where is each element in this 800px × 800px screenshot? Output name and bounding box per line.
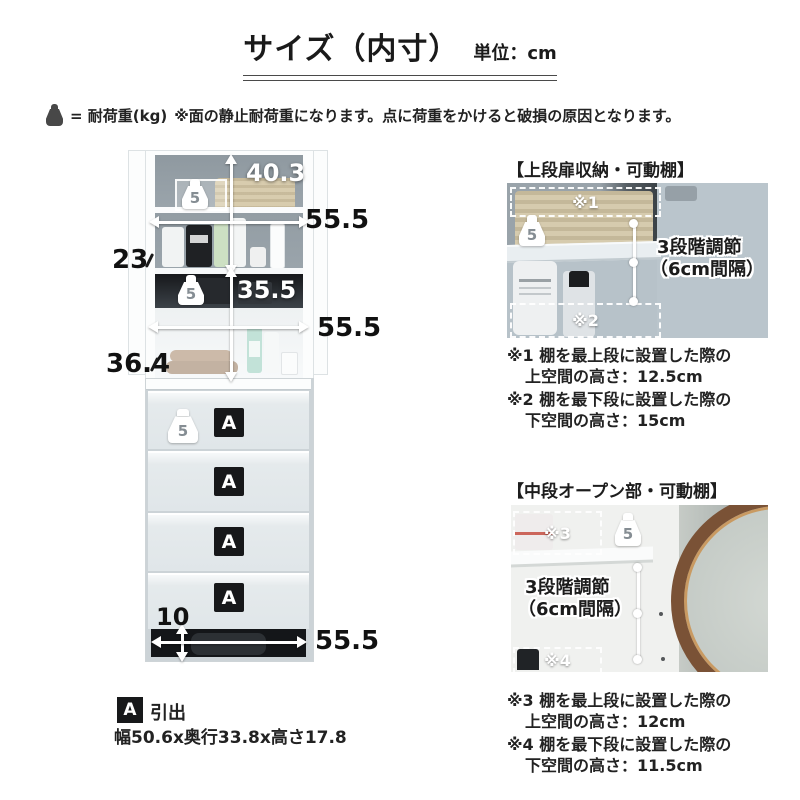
photo1-hinge-icon	[665, 186, 697, 201]
weight-icon-panel2: 5	[615, 513, 641, 546]
marker-2-label: ※2	[572, 311, 599, 330]
photo2-dot-bottom	[633, 655, 642, 664]
legend-name: 引出	[150, 699, 186, 725]
photo2-pin-hole-1	[659, 612, 663, 616]
panel2-adjust-line2: （6cm間隔）	[518, 600, 632, 620]
marker-4-label: ※4	[544, 651, 571, 670]
drawer-3-badge: A	[214, 527, 244, 556]
panel-2-header: 【中段オープン部・可動棚】	[507, 477, 727, 502]
drawer-4-badge: A	[214, 583, 244, 612]
title-underline	[243, 75, 557, 81]
weight-icon-panel1: 5	[519, 215, 545, 246]
clear-jar	[281, 352, 298, 375]
mint-bottle	[247, 327, 262, 373]
middle-height-label: 35.5	[237, 278, 296, 302]
photo2-marker-top-zone: ※3	[513, 511, 602, 555]
top-depth-label: 23	[112, 247, 148, 273]
unit-label: 単位：cm	[473, 43, 556, 64]
product-pouch-white	[162, 227, 184, 267]
product-bottle-slim	[270, 223, 285, 269]
photo1-marker-top-zone: ※1	[510, 187, 661, 217]
load-value-drawer: 5	[178, 424, 188, 439]
weight-icon-top-shelf: 5	[182, 179, 208, 209]
panel1-note2-line2: 下空間の高さ：15cm	[525, 407, 685, 431]
panel2-adjust-line1: 3段階調節	[525, 578, 610, 598]
photo1-marker-bottom-zone: ※2	[510, 303, 661, 338]
photo2-dot-mid	[633, 609, 642, 618]
legend-badge: A	[117, 697, 143, 723]
photo1-dot-top	[629, 219, 638, 228]
load-capacity-note: = 耐荷重(kg) ※面の静止耐荷重になります。点に荷重をかけると破損の原因とな…	[46, 104, 680, 126]
load-note-label: = 耐荷重(kg)	[70, 105, 167, 126]
arrow-top-height	[230, 163, 233, 266]
arrow-base-width	[160, 641, 298, 644]
panel-2-photo: ※3 5 3段階調節 （6cm間隔） ※4	[511, 505, 768, 672]
load-value-panel1: 5	[527, 228, 537, 243]
middle-width-label: 55.5	[317, 315, 381, 341]
panel1-adjust-line2: （6cm間隔）	[650, 260, 764, 280]
photo2-marker-bottom-zone: ※4	[513, 647, 602, 672]
weight-icon	[46, 104, 63, 126]
marker-1-label: ※1	[572, 193, 599, 212]
panel-1-photo: ※1 ※2 5 3段階調節 （6cm間隔）	[507, 183, 768, 338]
drawer-2-badge: A	[214, 467, 244, 496]
panel2-note1-line2: 上空間の高さ：12cm	[525, 708, 685, 732]
base-height-label: 10	[156, 605, 189, 629]
panel1-adjust-line1: 3段階調節	[657, 238, 742, 258]
top-height-label: 40.3	[246, 161, 305, 185]
base-gap-item	[191, 633, 266, 655]
arrow-middle-height	[230, 276, 233, 373]
page-title: サイズ（内寸）	[243, 32, 459, 67]
page-title-block: サイズ（内寸）単位：cm	[0, 24, 800, 81]
load-note-text: ※面の静止耐荷重になります。点に荷重をかけると破損の原因となります。	[174, 105, 680, 126]
marker-3-label: ※3	[544, 524, 571, 543]
middle-depth-label: 36.4	[106, 351, 170, 377]
weight-icon-drawer: 5	[168, 409, 198, 443]
product-jar	[250, 247, 266, 267]
load-value-top: 5	[190, 191, 200, 206]
product-tube-green	[214, 222, 228, 267]
panel2-note2-line2: 下空間の高さ：11.5cm	[525, 752, 703, 776]
panel-1-header: 【上段扉収納・可動棚】	[507, 156, 694, 181]
legend-size: 幅50.6x奥行33.8x高さ17.8	[114, 723, 347, 748]
load-value-middle: 5	[186, 287, 196, 302]
pump-bottle	[264, 332, 279, 373]
photo2-pin-hole-2	[661, 657, 665, 661]
drawer-1-badge: A	[214, 408, 244, 437]
photo1-dot-bottom	[629, 297, 638, 306]
photo2-dot-top	[633, 563, 642, 572]
arrow-middle-width	[157, 326, 300, 329]
detail-panels: 【上段扉収納・可動棚】 ※1 ※2 5 3段階調節 （6cm間隔） ※1 棚を最…	[480, 145, 795, 795]
load-value-panel2: 5	[623, 527, 633, 542]
product-pouch-black	[186, 225, 212, 267]
arrow-top-width	[158, 221, 300, 224]
top-width-label: 55.5	[305, 207, 369, 233]
panel1-note1-line2: 上空間の高さ：12.5cm	[525, 363, 703, 387]
weight-icon-middle-shelf: 5	[178, 275, 204, 305]
photo1-dot-mid	[629, 258, 638, 267]
cabinet-figure: 5 5 40.3 55.5 23 35.5 55.5 36.4 A A	[100, 145, 400, 757]
base-width-label: 55.5	[315, 628, 379, 654]
